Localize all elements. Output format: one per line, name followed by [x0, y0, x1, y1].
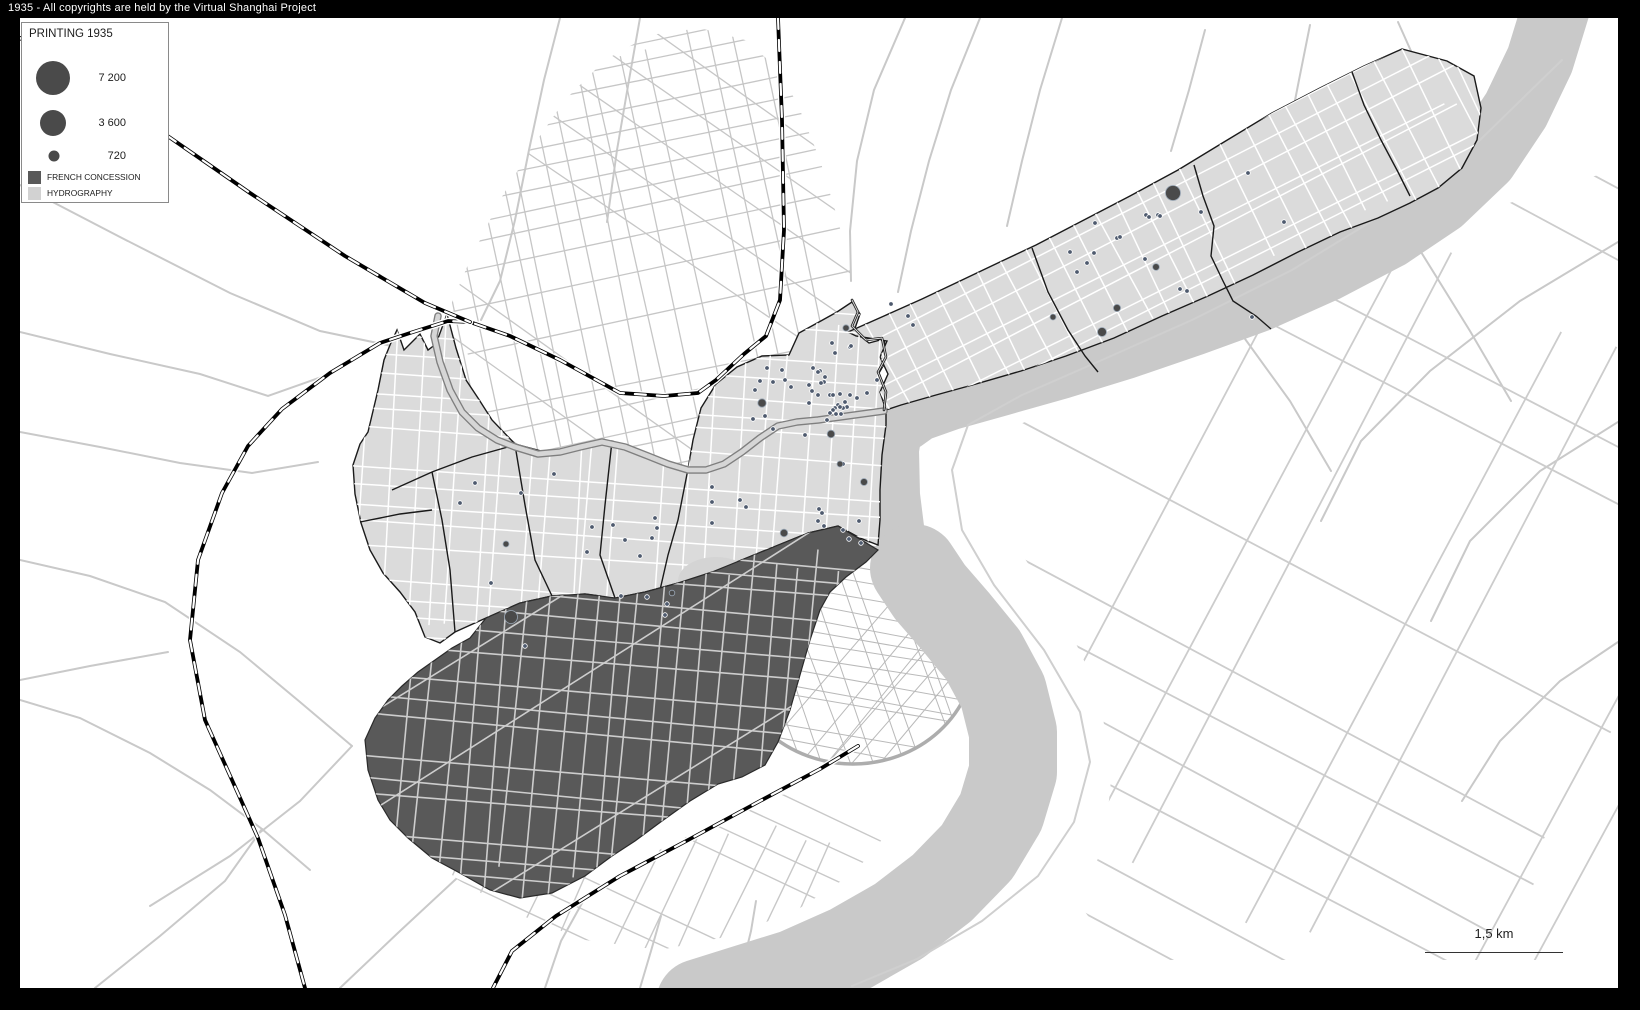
printing-location-dot	[849, 344, 854, 349]
printing-location-dot	[1085, 261, 1090, 266]
printing-location-dot	[803, 433, 808, 438]
printing-location-dot	[1147, 215, 1152, 220]
legend-swatch-hydrography	[28, 187, 41, 200]
printing-location-dot	[831, 393, 836, 398]
printing-location-dot	[861, 479, 868, 486]
printing-location-dot	[623, 538, 628, 543]
scale-bar-line	[1425, 952, 1563, 953]
printing-location-dot	[911, 323, 916, 328]
printing-location-dot	[848, 393, 853, 398]
printing-location-dot	[765, 366, 770, 371]
frame-bottom	[0, 988, 1640, 1010]
printing-location-dot	[1050, 314, 1056, 320]
printing-location-dot	[1178, 287, 1183, 292]
legend-swatch-french-concession	[28, 171, 41, 184]
printing-location-dot	[519, 491, 524, 496]
printing-location-dot	[663, 613, 668, 618]
printing-location-dot	[1282, 220, 1287, 225]
printing-location-dot	[638, 554, 643, 559]
printing-location-dot	[744, 505, 749, 510]
printing-location-dot	[473, 481, 478, 486]
printing-location-dot	[807, 383, 812, 388]
legend-value-3600: 3 600	[80, 117, 126, 129]
printing-location-dot	[838, 392, 843, 397]
legend-panel: PRINTING 1935 7 200 3 600 720 FRENCH CON…	[21, 22, 169, 203]
printing-location-dot	[816, 519, 821, 524]
printing-location-dot	[650, 536, 655, 541]
printing-location-dot	[710, 485, 715, 490]
printing-location-dot	[645, 595, 650, 600]
printing-location-dot	[807, 401, 812, 406]
printing-location-dot	[753, 388, 758, 393]
printing-location-dot	[837, 461, 843, 467]
copyright-text: 1935 - All copyrights are held by the Vi…	[8, 2, 316, 14]
map-canvas	[0, 0, 1640, 1010]
printing-location-dot	[825, 418, 830, 423]
printing-location-dot	[489, 581, 494, 586]
printing-location-dot	[839, 412, 844, 417]
printing-location-dot	[1185, 289, 1190, 294]
printing-location-dot	[783, 378, 788, 383]
printing-location-dot	[619, 594, 624, 599]
legend-label-hydrography: HYDROGRAPHY	[47, 187, 113, 200]
frame-right	[1618, 0, 1640, 1010]
printing-location-dot	[822, 524, 827, 529]
printing-location-dot	[763, 414, 768, 419]
printing-location-dot	[811, 366, 816, 371]
printing-location-dot	[1093, 221, 1098, 226]
printing-location-dot	[875, 378, 880, 383]
printing-location-dot	[458, 501, 463, 506]
printing-location-dot	[1250, 315, 1255, 320]
printing-location-dot	[1199, 210, 1204, 215]
printing-location-dot	[1246, 171, 1251, 176]
printing-location-dot	[843, 325, 849, 331]
printing-location-dot	[758, 379, 763, 384]
map-window: 1935 - All copyrights are held by the Vi…	[0, 0, 1640, 1010]
printing-location-dot	[653, 516, 658, 521]
printing-location-dot	[1158, 214, 1163, 219]
legend-circle-3600	[40, 110, 66, 136]
printing-location-dot	[1166, 186, 1181, 201]
printing-location-dot	[710, 521, 715, 526]
scale-bar-label: 1,5 km	[1425, 926, 1563, 941]
printing-location-dot	[823, 375, 828, 380]
printing-location-dot	[758, 399, 766, 407]
printing-location-dot	[789, 385, 794, 390]
printing-location-dot	[771, 380, 776, 385]
legend-label-french-concession: FRENCH CONCESSION	[47, 171, 141, 184]
legend-value-7200: 7 200	[80, 72, 126, 84]
printing-location-dot	[780, 368, 785, 373]
legend-value-720: 720	[80, 150, 126, 162]
copyright-bar: 1935 - All copyrights are held by the Vi…	[0, 0, 1640, 18]
printing-location-dot	[780, 529, 788, 537]
printing-location-dot	[1118, 235, 1123, 240]
printing-location-dot	[611, 523, 616, 528]
printing-location-dot	[838, 405, 843, 410]
printing-location-dot	[1068, 250, 1073, 255]
printing-location-dot	[834, 412, 839, 417]
printing-location-dot	[503, 541, 509, 547]
printing-location-dot	[655, 526, 660, 531]
printing-location-dot	[819, 381, 824, 386]
printing-location-dot	[828, 411, 833, 416]
printing-location-dot	[865, 391, 870, 396]
printing-location-dot	[1098, 328, 1107, 337]
printing-location-dot	[669, 590, 675, 596]
printing-location-dot	[855, 396, 860, 401]
printing-location-dot	[590, 525, 595, 530]
printing-location-dot	[816, 370, 821, 375]
frame-left	[0, 0, 20, 1010]
printing-location-dot	[1153, 264, 1160, 271]
printing-location-dot	[906, 314, 911, 319]
printing-location-dot	[859, 541, 864, 546]
printing-location-dot	[585, 550, 590, 555]
printing-location-dot	[816, 393, 821, 398]
printing-location-dot	[665, 602, 670, 607]
printing-location-dot	[1092, 251, 1097, 256]
printing-location-dot	[1075, 270, 1080, 275]
printing-location-dot	[810, 389, 815, 394]
printing-location-dot	[847, 537, 852, 542]
printing-location-dot	[843, 400, 848, 405]
printing-location-dot	[827, 430, 835, 438]
printing-location-dot	[817, 507, 822, 512]
printing-location-dot	[1113, 304, 1120, 311]
printing-location-dot	[552, 472, 557, 477]
printing-location-dot	[820, 511, 825, 516]
printing-location-dot	[710, 500, 715, 505]
legend-circle-720	[49, 151, 60, 162]
legend-title: PRINTING 1935	[29, 28, 113, 40]
printing-location-dot	[830, 341, 835, 346]
printing-location-dot	[857, 519, 862, 524]
printing-location-dot	[523, 644, 528, 649]
printing-location-dot	[841, 528, 846, 533]
printing-location-dot	[833, 351, 838, 356]
printing-location-dot	[889, 302, 894, 307]
printing-location-dot	[738, 498, 743, 503]
printing-location-dot	[1143, 257, 1148, 262]
printing-location-dot	[771, 427, 776, 432]
printing-location-dot	[505, 611, 518, 624]
scale-bar: 1,5 km	[1425, 926, 1563, 953]
legend-circle-7200	[36, 61, 70, 95]
printing-location-dot	[751, 417, 756, 422]
